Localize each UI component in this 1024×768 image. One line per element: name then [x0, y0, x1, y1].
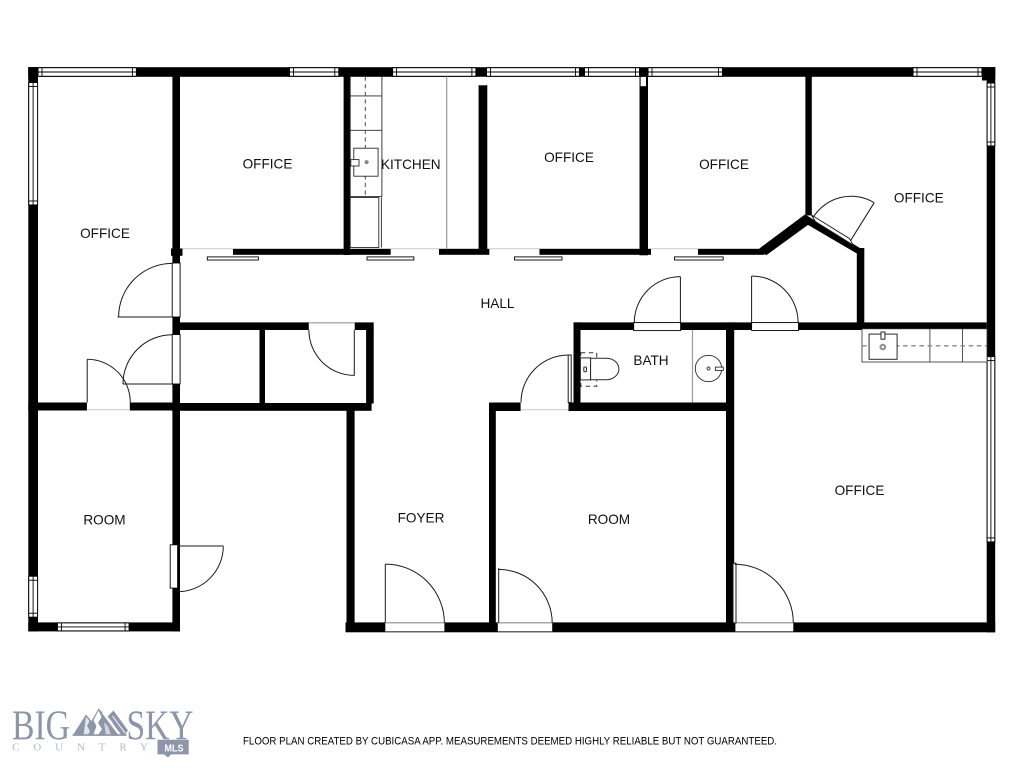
svg-text:KITCHEN: KITCHEN [381, 157, 441, 172]
svg-text:OFFICE: OFFICE [80, 226, 130, 241]
svg-text:ROOM: ROOM [588, 512, 630, 527]
svg-text:HALL: HALL [480, 296, 514, 311]
svg-text:OFFICE: OFFICE [544, 150, 594, 165]
svg-text:OFFICE: OFFICE [894, 190, 944, 205]
svg-text:ROOM: ROOM [83, 513, 125, 528]
svg-text:FOYER: FOYER [398, 510, 445, 525]
svg-text:OFFICE: OFFICE [699, 157, 749, 172]
svg-text:OFFICE: OFFICE [243, 156, 293, 171]
svg-text:MLS: MLS [165, 743, 184, 755]
svg-text:OFFICE: OFFICE [835, 483, 885, 498]
svg-text:BATH: BATH [633, 353, 668, 368]
svg-text:FLOOR PLAN CREATED BY CUBICASA: FLOOR PLAN CREATED BY CUBICASA APP. MEAS… [243, 735, 777, 747]
